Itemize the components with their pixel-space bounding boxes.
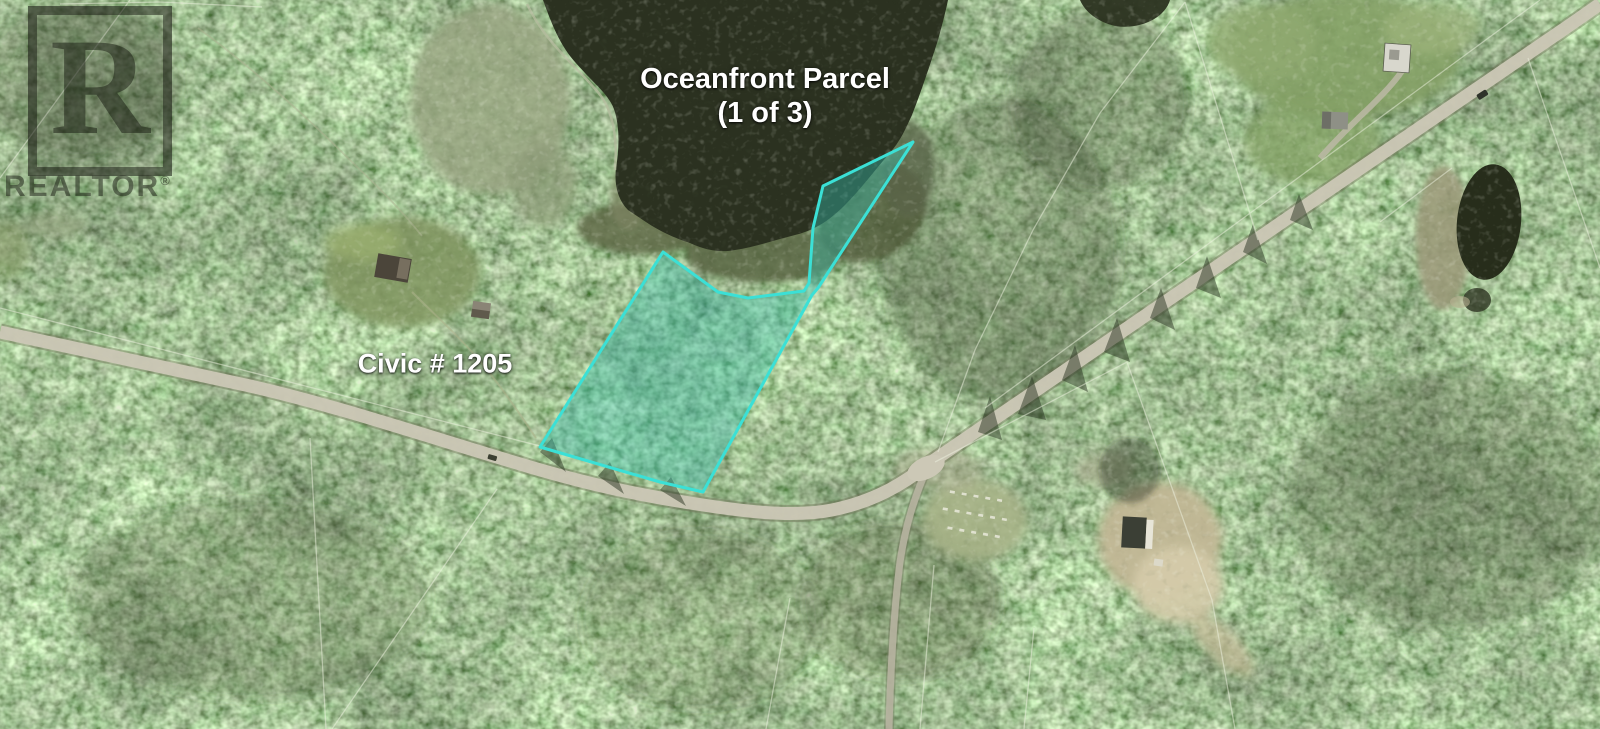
- realtor-logo-box: R: [28, 6, 172, 176]
- small-structure: [1153, 558, 1163, 566]
- parcel-title-label: Oceanfront Parcel (1 of 3): [640, 62, 890, 130]
- civic-number-label: Civic # 1205: [358, 349, 513, 380]
- registered-trademark-symbol: ®: [160, 173, 170, 188]
- realtor-wordmark: REALTOR®: [4, 170, 170, 204]
- parcel-title-line1: Oceanfront Parcel: [640, 62, 890, 96]
- pit-building-roof: [1121, 516, 1147, 548]
- realtor-logo-r: R: [50, 18, 150, 156]
- realtor-brand-text: REALTOR: [4, 170, 160, 203]
- aerial-property-photo: Oceanfront Parcel (1 of 3) Civic # 1205 …: [0, 0, 1600, 729]
- house-roof-detail: [1389, 49, 1400, 60]
- house-roof-shade: [1322, 112, 1332, 129]
- parcel-title-line2: (1 of 3): [640, 96, 890, 130]
